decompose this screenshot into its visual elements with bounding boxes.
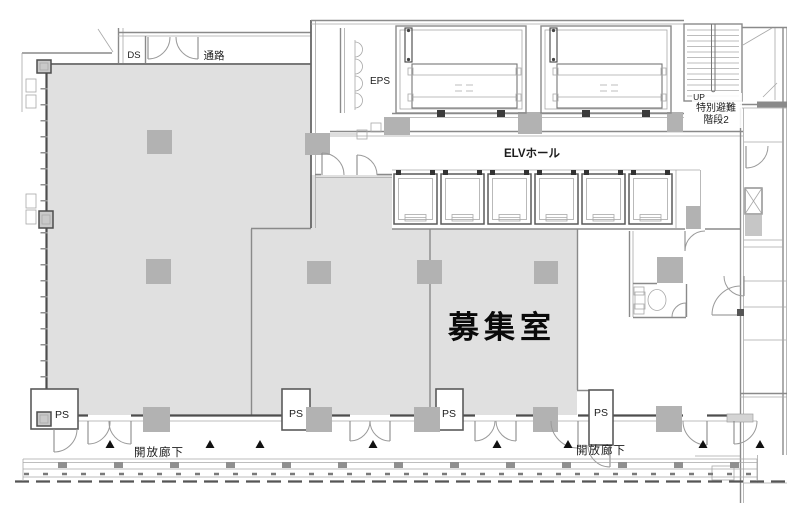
column	[147, 130, 172, 154]
column	[534, 261, 558, 284]
elevator-car	[441, 170, 484, 224]
column	[417, 260, 442, 284]
floor-plan: DS 通路 EPS ELVホール UP 特別避難 階段2 募集室 PS PS P…	[0, 0, 787, 505]
column	[533, 407, 558, 432]
label-passage: 通路	[204, 49, 225, 62]
elevator-car	[535, 170, 578, 224]
label-ps-3: PS	[442, 408, 456, 420]
floor-plan-canvas: DS 通路 EPS ELVホール UP 特別避難 階段2 募集室 PS PS P…	[0, 0, 787, 505]
label-eps: EPS	[370, 76, 390, 87]
column	[307, 261, 331, 284]
label-open-corridor-left: 開放廊下	[134, 445, 184, 459]
column	[305, 133, 330, 155]
label-stair-name-1: 特別避難	[696, 101, 736, 114]
label-stair-up: UP	[693, 92, 705, 102]
elevator-car	[488, 170, 531, 224]
label-vacant-room: 募集室	[447, 310, 556, 345]
column	[146, 259, 171, 284]
label-ds: DS	[127, 50, 140, 61]
column	[518, 112, 542, 134]
elevator-car	[394, 170, 437, 224]
column	[656, 406, 682, 432]
label-stair-name-2: 階段2	[703, 113, 729, 126]
label-open-corridor-right: 開放廊下	[576, 443, 626, 457]
column	[143, 407, 170, 432]
column	[306, 407, 332, 432]
column	[414, 407, 440, 432]
column	[667, 112, 683, 132]
planter	[727, 414, 753, 422]
label-ps-1: PS	[55, 409, 69, 421]
elevator-car	[582, 170, 625, 224]
column	[384, 117, 410, 135]
label-elv-hall: ELVホール	[504, 147, 561, 160]
label-ps-4: PS	[594, 407, 608, 419]
label-ps-2: PS	[289, 408, 303, 420]
column	[657, 257, 683, 283]
elevator-car	[629, 170, 672, 224]
column	[686, 206, 700, 229]
